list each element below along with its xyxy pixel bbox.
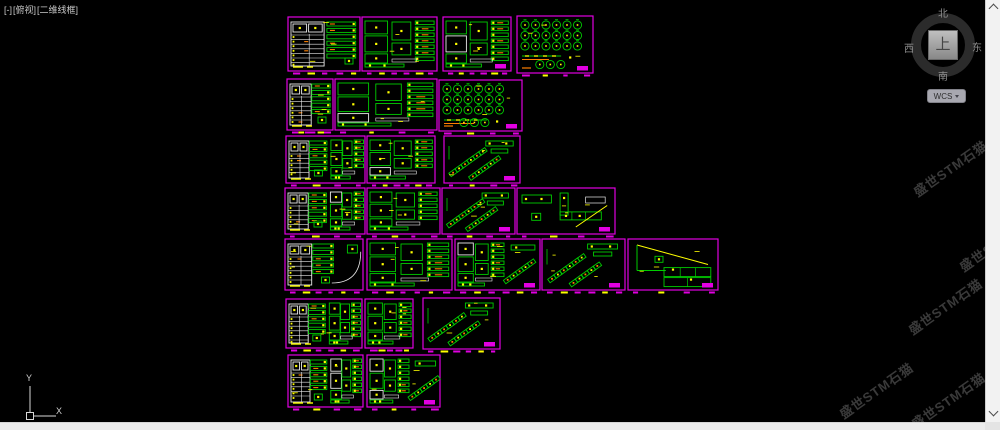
drawing-panel[interactable] xyxy=(287,79,333,134)
drawing-panel[interactable] xyxy=(362,17,437,75)
drawing-panel[interactable] xyxy=(443,17,511,75)
drawing-panel[interactable] xyxy=(442,188,515,238)
drawing-panel[interactable] xyxy=(367,239,452,294)
drawing-panel[interactable] xyxy=(286,136,365,187)
wcs-dropdown-button[interactable]: WCS xyxy=(927,89,966,103)
view-control[interactable]: [俯视] xyxy=(13,5,36,15)
scrollbar-corner xyxy=(985,422,1000,430)
drawing-panel[interactable] xyxy=(517,188,615,238)
drawing-panel[interactable] xyxy=(335,79,437,134)
view-cube-east-label[interactable]: 东 xyxy=(972,39,982,54)
view-cube[interactable]: 上 北 南 西 东 xyxy=(908,8,978,78)
horizontal-scrollbar[interactable] xyxy=(0,422,985,430)
drawing-panel[interactable] xyxy=(288,355,363,411)
drawing-panel[interactable] xyxy=(365,299,413,352)
drawing-panel[interactable] xyxy=(367,136,435,187)
drawing-panel[interactable] xyxy=(628,239,718,294)
scroll-down-icon[interactable] xyxy=(989,407,999,417)
ucs-x-axis-label: X xyxy=(56,406,62,416)
view-cube-north-label[interactable]: 北 xyxy=(938,5,948,20)
viewport-controls: [-][俯视][二维线框] xyxy=(4,3,79,16)
view-cube-west-label[interactable]: 西 xyxy=(904,40,914,55)
drawing-panel[interactable] xyxy=(285,188,365,238)
visual-style-control[interactable]: [二维线框] xyxy=(37,5,78,15)
vertical-scrollbar[interactable] xyxy=(985,0,1000,422)
ucs-icon: Y X xyxy=(14,370,74,424)
view-cube-south-label[interactable]: 南 xyxy=(938,68,948,83)
drawing-panel[interactable] xyxy=(286,299,362,352)
scroll-up-icon[interactable] xyxy=(989,4,999,14)
wcs-label: WCS xyxy=(934,92,953,101)
drawing-panel[interactable] xyxy=(439,80,522,135)
drawing-panel[interactable] xyxy=(423,298,500,353)
drawing-panel[interactable] xyxy=(542,239,625,294)
drawing-panel[interactable] xyxy=(367,188,440,238)
ucs-y-axis-label: Y xyxy=(26,373,32,383)
drawing-panel[interactable] xyxy=(288,17,360,75)
chevron-down-icon xyxy=(955,95,959,98)
drawing-panel[interactable] xyxy=(444,136,520,187)
view-cube-top-face[interactable]: 上 xyxy=(928,30,958,60)
viewport-menu-control[interactable]: [-] xyxy=(4,5,12,15)
drawing-panel[interactable] xyxy=(455,239,540,294)
cad-viewport: [-][俯视][二维线框] 上 北 南 西 东 WCS Y X 盛世STM石猫盛… xyxy=(0,0,1000,430)
drawing-panel[interactable] xyxy=(517,16,593,77)
drawing-panel[interactable] xyxy=(285,239,363,294)
drawing-panel[interactable] xyxy=(367,355,440,411)
drawing-canvas[interactable] xyxy=(0,0,1000,430)
